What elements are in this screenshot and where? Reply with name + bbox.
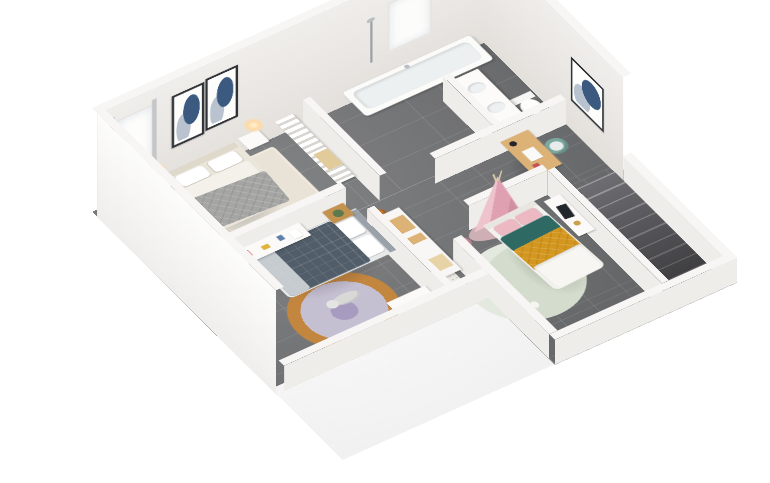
art-supply-paper bbox=[288, 229, 303, 239]
wall-art-frame-2 bbox=[205, 65, 237, 132]
office-art-abstract bbox=[574, 64, 601, 126]
bathroom-window bbox=[388, 0, 432, 53]
desk-lamp-black bbox=[508, 140, 519, 147]
art-supply-blue bbox=[276, 235, 286, 242]
wall-art-frame-1 bbox=[172, 82, 204, 149]
shower-bar bbox=[370, 20, 372, 63]
desk-papers bbox=[521, 146, 543, 161]
shower-head bbox=[367, 16, 375, 24]
kid2-gold-lamp bbox=[572, 220, 582, 227]
office-wall-art bbox=[571, 56, 604, 132]
kid1-nightstand-plant bbox=[331, 208, 347, 218]
kid2-tablet bbox=[556, 203, 575, 219]
art-supply-yellow bbox=[261, 244, 271, 251]
wall-art-2-abstract bbox=[210, 71, 233, 125]
wall-art-1-abstract bbox=[176, 88, 199, 142]
floorplan-render bbox=[0, 0, 770, 483]
apartment-plan bbox=[92, 34, 737, 461]
